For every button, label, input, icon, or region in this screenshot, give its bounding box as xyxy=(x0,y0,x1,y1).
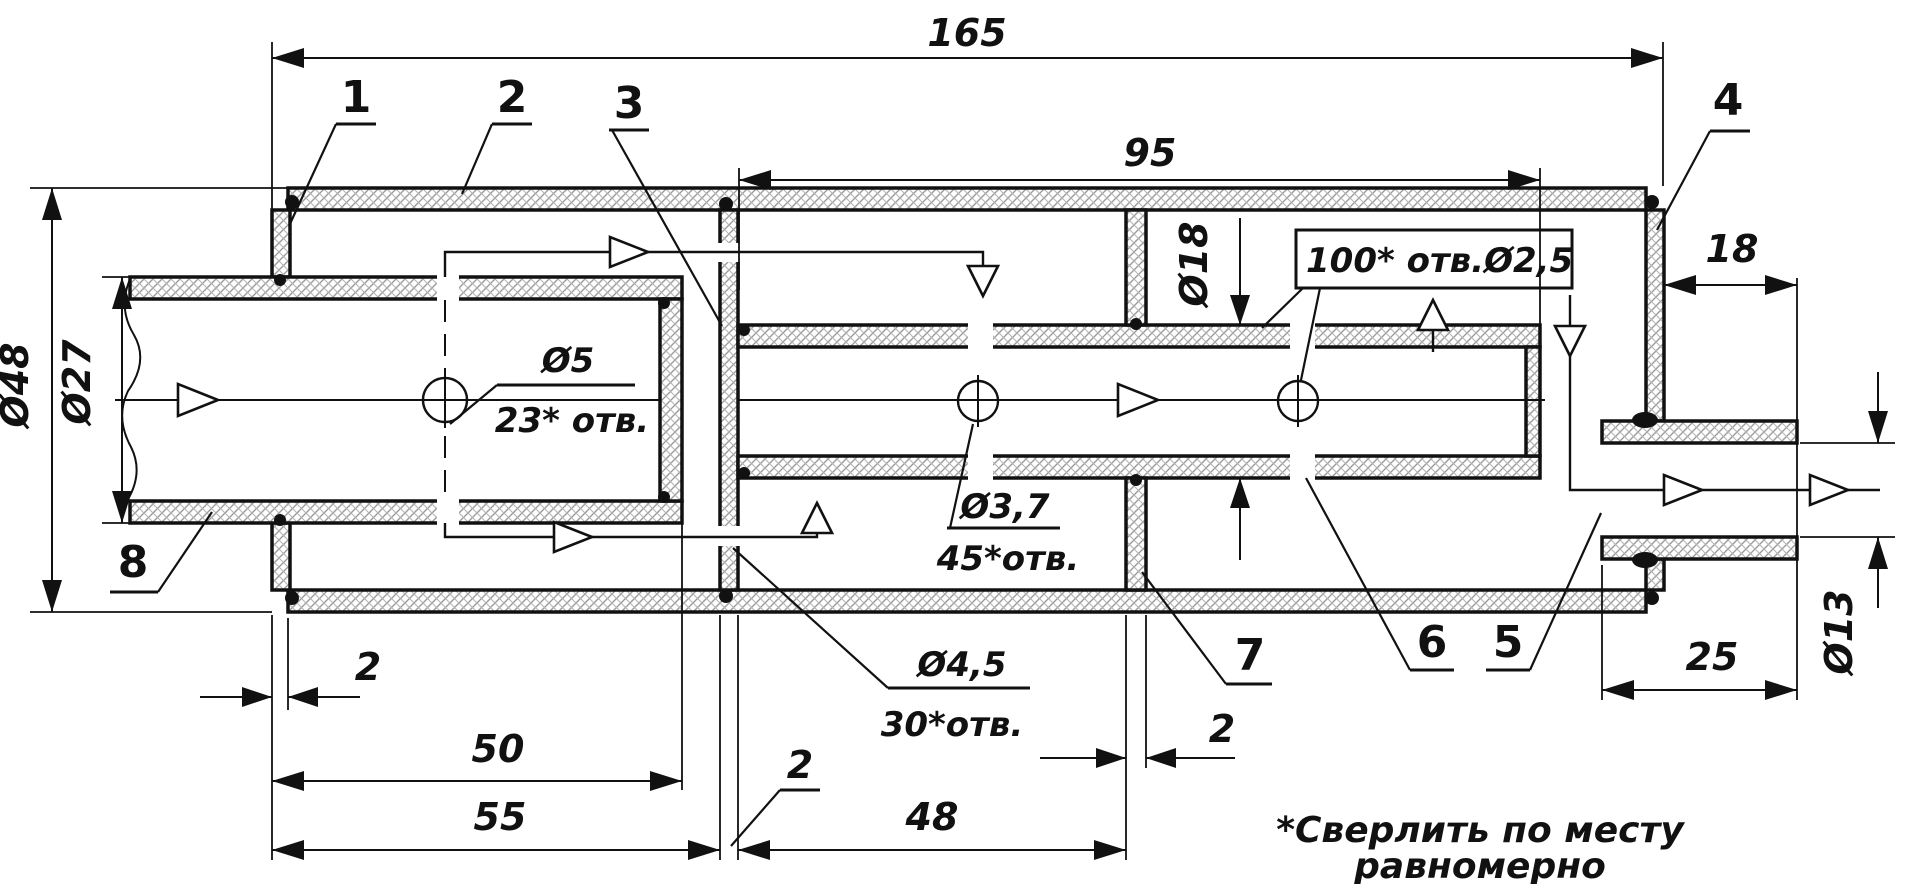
dim-outlet-diameter: Ø13 xyxy=(1817,589,1861,676)
part-label-5: 5 xyxy=(1493,617,1524,668)
note-line-1: *Сверлить по месту xyxy=(1276,810,1685,851)
flow-arrow-up-into-tube xyxy=(802,503,832,533)
dimension-50: 50 xyxy=(272,508,682,791)
dimension-2-left-cap: 2 xyxy=(200,615,381,860)
partition-7-upper xyxy=(1126,210,1146,325)
dim-inlet-diameter: Ø27 xyxy=(55,339,99,427)
flow-arrow-out-of-tube xyxy=(1418,300,1448,330)
part-label-4: 4 xyxy=(1713,75,1744,126)
dim-total-length: 165 xyxy=(927,11,1006,55)
flow-arrow-upper xyxy=(610,237,648,267)
muffler-cross-section-drawing: 165 95 18 Ø48 Ø27 Ø18 xyxy=(0,0,1910,884)
perforated-tube-bottom-wall xyxy=(738,456,1540,478)
dimension-18: 18 xyxy=(1664,227,1797,700)
outer-tube-bottom-wall xyxy=(288,590,1646,612)
inlet-hole-gap-bottom xyxy=(437,499,459,526)
part-label-1: 1 xyxy=(341,72,372,123)
dim-front-section: 55 xyxy=(474,795,527,839)
flow-arrow-down-exit xyxy=(1555,326,1585,356)
tube-hole-gap-1b xyxy=(968,454,993,480)
inlet-tube-bottom-wall xyxy=(130,501,682,523)
callout-inlet-count: 23* отв. xyxy=(495,401,649,441)
flow-arrow-down-into-tube xyxy=(968,266,998,296)
outlet-flow-line xyxy=(1570,295,1880,490)
tube-hole-gap-1t xyxy=(968,323,993,349)
flow-arrow-inlet xyxy=(178,384,218,416)
callout-100-holes: 100* отв.Ø2,5 xyxy=(1306,241,1573,281)
part-label-8: 8 xyxy=(118,537,149,588)
dim-tube-length: 95 xyxy=(1124,131,1177,175)
dimension-dia18: Ø18 xyxy=(1172,218,1250,560)
central-partition xyxy=(718,210,740,590)
right-end-cap xyxy=(1646,210,1664,590)
part-label-2: 2 xyxy=(497,72,528,123)
flow-arrow-lower xyxy=(554,522,592,552)
perforated-tube-end-wall xyxy=(1526,347,1540,456)
part-label-6: 6 xyxy=(1417,617,1448,668)
callout-partition-count: 30*отв. xyxy=(881,705,1024,745)
note-line-2: равномерно xyxy=(1353,846,1606,884)
break-line xyxy=(122,277,140,501)
callout-tube-count: 45*отв. xyxy=(936,539,1080,579)
inlet-hole-gap-top xyxy=(437,275,459,302)
left-cap-lower xyxy=(272,523,290,590)
dimension-2-partition3: 2 xyxy=(731,743,820,846)
dim-partition3-thickness: 2 xyxy=(787,743,813,787)
flow-arrow-outlet-2 xyxy=(1810,475,1848,505)
callout-tube-dia: Ø3,7 xyxy=(958,487,1049,527)
tube-hole-gap-2b xyxy=(1290,454,1315,480)
dim-outer-diameter: Ø48 xyxy=(0,342,37,429)
callout-inlet-dia: Ø5 xyxy=(540,341,595,381)
part-label-7: 7 xyxy=(1235,630,1266,681)
callout-inlet-holes: Ø5 23* отв. xyxy=(450,341,649,441)
outlet-tube-bottom-wall xyxy=(1602,537,1797,559)
dim-partition7-thickness: 2 xyxy=(1209,707,1235,751)
dim-tube-diameter: Ø18 xyxy=(1172,221,1216,308)
dim-middle-section: 48 xyxy=(905,795,959,839)
part-label-3: 3 xyxy=(614,78,645,129)
inlet-tube-top-wall xyxy=(130,277,682,299)
outlet-tube-top-wall xyxy=(1602,421,1797,443)
drilling-note: *Сверлить по месту равномерно xyxy=(1276,810,1685,884)
dimension-2-partition7: 2 xyxy=(1040,615,1235,768)
flow-arrow-tube xyxy=(1118,384,1158,416)
dim-outlet-protrusion: 18 xyxy=(1706,227,1759,271)
inlet-tube-end-plug xyxy=(660,299,682,501)
callout-tube-holes: Ø3,7 45*отв. xyxy=(936,424,1080,579)
left-cap-upper xyxy=(272,210,290,277)
outer-tube-top-wall xyxy=(288,188,1646,210)
dimension-dia13: Ø13 xyxy=(1800,372,1895,677)
callout-partition-dia: Ø4,5 xyxy=(915,645,1006,685)
dim-outlet-length: 25 xyxy=(1686,635,1739,679)
drawing-canvas: 165 95 18 Ø48 Ø27 Ø18 xyxy=(0,0,1910,884)
flow-arrow-outlet-1 xyxy=(1664,475,1702,505)
dimension-25: 25 xyxy=(1602,565,1797,700)
right-cap-upper xyxy=(1646,210,1664,421)
dim-cap-thickness: 2 xyxy=(355,645,381,689)
dim-inlet-section: 50 xyxy=(472,727,525,771)
